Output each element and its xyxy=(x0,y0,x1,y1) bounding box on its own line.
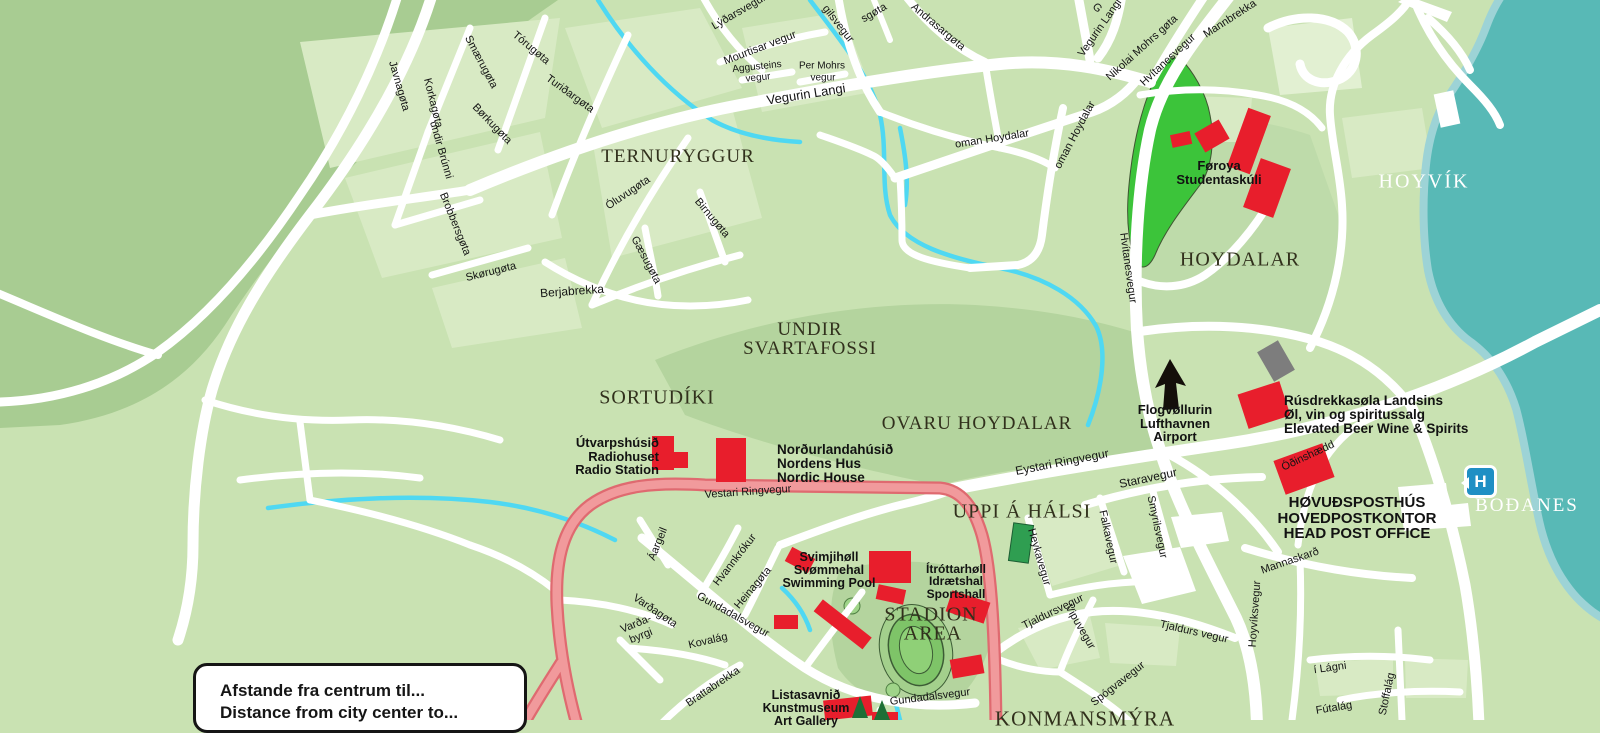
map-graphics xyxy=(0,0,1600,720)
hospital-letter: H xyxy=(1474,472,1486,492)
map-canvas: JavnagøtaKorkagøtaundir BrúnniSmærugøtaT… xyxy=(0,0,1600,720)
hospital-icon: H xyxy=(1464,465,1497,498)
legend-line-2: Distance from city center to... xyxy=(220,702,524,724)
legend-line-1: Afstande fra centrum til... xyxy=(220,680,524,702)
legend-box: Afstande fra centrum til... Distance fro… xyxy=(193,663,527,733)
